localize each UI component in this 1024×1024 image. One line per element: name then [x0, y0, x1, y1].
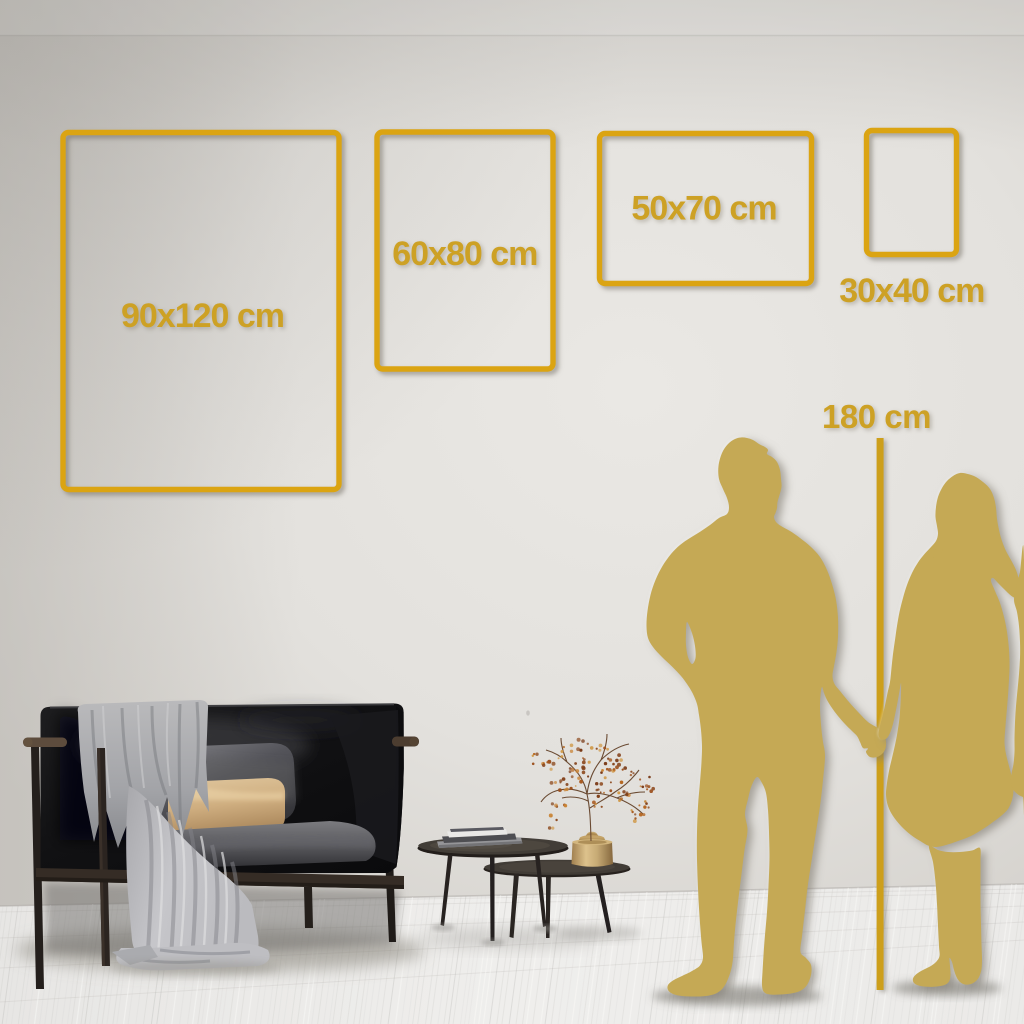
svg-text:60x80 cm: 60x80 cm [392, 235, 537, 273]
svg-text:90x120 cm: 90x120 cm [121, 297, 284, 335]
svg-text:50x70 cm: 50x70 cm [631, 190, 776, 228]
svg-text:30x40 cm: 30x40 cm [839, 272, 984, 310]
svg-text:180 cm: 180 cm [822, 398, 931, 435]
